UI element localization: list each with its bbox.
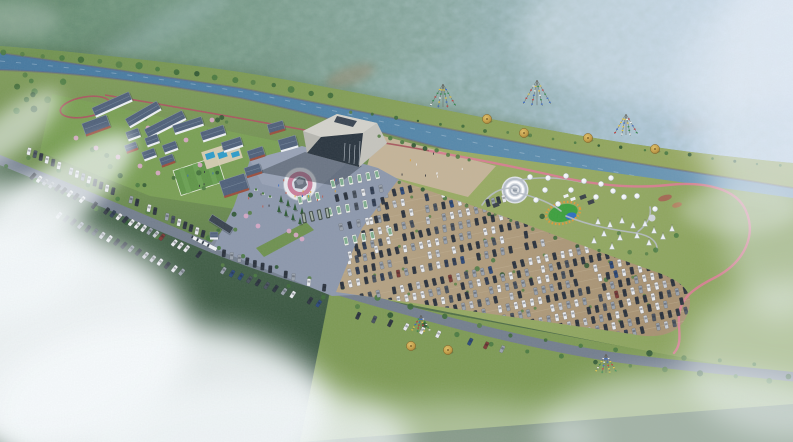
flag [597, 367, 599, 368]
flag [544, 94, 546, 95]
dome-tent [545, 175, 550, 180]
flag [620, 122, 622, 123]
tree [508, 333, 512, 337]
tree [174, 69, 180, 75]
flag [542, 89, 544, 90]
flag [429, 329, 431, 330]
tree [574, 141, 577, 144]
car [291, 273, 295, 281]
dome-tent [652, 206, 657, 211]
tree [579, 344, 583, 348]
flag [446, 101, 448, 102]
flag [535, 86, 537, 87]
tree [489, 342, 494, 347]
tree [371, 113, 374, 116]
tree [674, 233, 679, 238]
person [462, 168, 463, 170]
tree [349, 111, 352, 114]
tree [483, 129, 487, 133]
flag [528, 94, 530, 95]
dome-tent [581, 178, 586, 183]
planter-tree [255, 188, 257, 190]
flag [618, 125, 620, 126]
wall [210, 237, 218, 239]
person [199, 185, 200, 187]
flag [602, 368, 604, 369]
flag [411, 329, 413, 330]
tree [14, 84, 20, 90]
dome-tent [608, 175, 613, 180]
tree [115, 197, 120, 202]
flag [444, 93, 446, 94]
flag [423, 330, 425, 331]
tree [194, 71, 199, 76]
flag [595, 370, 597, 371]
flag [629, 133, 631, 134]
flag [630, 122, 632, 123]
flag [614, 132, 616, 133]
person [402, 174, 403, 176]
flag [636, 132, 638, 133]
tree [233, 228, 237, 232]
flag [604, 358, 606, 359]
flag [421, 322, 423, 323]
car [222, 249, 226, 257]
person [262, 205, 263, 207]
tree [394, 116, 398, 120]
tree [60, 79, 66, 85]
flag [603, 365, 605, 366]
person [204, 183, 205, 185]
parking-bush [454, 283, 457, 286]
flag [622, 130, 624, 131]
flag [525, 98, 527, 99]
tree [215, 171, 219, 175]
flag [531, 104, 533, 105]
cherry-blossom-tree [156, 171, 161, 176]
tree [407, 304, 413, 310]
aerial-rendering-screenshot [0, 0, 793, 442]
tree [232, 77, 238, 83]
person [295, 195, 296, 197]
flag [623, 122, 625, 123]
cherry-blossom-tree [74, 136, 79, 141]
tree [387, 312, 393, 318]
building [210, 232, 219, 240]
flag [413, 327, 415, 328]
flag [547, 98, 549, 99]
person [437, 176, 438, 178]
flag [628, 130, 630, 131]
cherry-blossom-tree [210, 118, 215, 123]
tree [202, 186, 206, 190]
tree [593, 360, 598, 365]
dome-tent [527, 174, 532, 179]
tree [627, 250, 632, 255]
car [307, 279, 311, 287]
flag [622, 126, 624, 127]
tree [446, 153, 450, 157]
tree [4, 164, 8, 168]
flag [425, 324, 427, 325]
flag [541, 104, 543, 105]
flag [540, 99, 542, 100]
flag [432, 100, 434, 101]
tree [155, 67, 160, 72]
flag [627, 122, 629, 123]
person [269, 205, 270, 207]
flag [439, 97, 441, 98]
tree [400, 140, 404, 144]
person [410, 159, 411, 161]
flag [445, 97, 447, 98]
tree-shadow [292, 220, 296, 222]
flag [523, 102, 525, 103]
flag [422, 325, 424, 326]
dome-tent [621, 194, 626, 199]
tree [287, 284, 291, 288]
flag [533, 95, 535, 96]
flag [622, 118, 624, 119]
person [335, 190, 336, 192]
tree [553, 236, 557, 240]
car [268, 265, 272, 273]
car [284, 271, 288, 279]
flag [599, 364, 601, 365]
flag [437, 93, 439, 94]
tree [597, 249, 600, 252]
flag [628, 126, 630, 127]
person [204, 171, 205, 173]
flag [609, 371, 611, 372]
tree [272, 83, 276, 87]
tree [398, 181, 401, 184]
person [303, 190, 304, 192]
cherry-blossom-tree [300, 237, 305, 242]
cherry-blossom-tree [184, 138, 189, 143]
parking-bush [415, 230, 418, 233]
flag [439, 89, 441, 90]
flag [538, 90, 540, 91]
tree [217, 246, 221, 250]
parking-bush [410, 195, 413, 198]
tree [506, 131, 509, 134]
tree [468, 158, 471, 161]
flag [443, 89, 445, 90]
tree [308, 91, 313, 96]
dome-tent [610, 188, 615, 193]
tree [221, 263, 225, 267]
flag [608, 358, 610, 359]
tree [597, 144, 600, 147]
person [336, 179, 337, 181]
flag [417, 330, 419, 331]
tree [29, 79, 34, 84]
tree [328, 93, 334, 99]
flag [440, 93, 442, 94]
tree [275, 265, 279, 269]
person [317, 199, 318, 201]
flag [430, 104, 432, 105]
person [283, 179, 284, 181]
car [260, 263, 264, 271]
flag [534, 90, 536, 91]
tree [321, 295, 326, 300]
flag [613, 367, 615, 368]
tree [26, 156, 30, 160]
parking-bush [534, 307, 537, 310]
flag [419, 319, 421, 320]
flag [539, 95, 541, 96]
tree [23, 72, 28, 77]
tree [442, 314, 447, 319]
flag [445, 89, 447, 90]
flag [608, 368, 610, 369]
tree-shadow [294, 210, 298, 212]
parking-bush [512, 270, 515, 273]
tree [477, 323, 482, 328]
flag [447, 93, 449, 94]
tree [559, 354, 564, 359]
flag [437, 105, 439, 106]
tree [97, 59, 102, 64]
tree [355, 304, 360, 309]
flag [416, 321, 418, 322]
flag [621, 133, 623, 134]
flag [607, 362, 609, 363]
flag [539, 85, 541, 86]
tree [59, 55, 65, 61]
cherry-blossom-tree [287, 229, 292, 234]
person [308, 195, 309, 197]
tree [219, 115, 224, 120]
planter-tree [262, 192, 264, 194]
dome-tent [555, 201, 560, 206]
tree [439, 123, 442, 126]
tree [456, 155, 460, 159]
tree-shadow [299, 224, 303, 226]
person [310, 191, 311, 193]
dome-tent [542, 187, 547, 192]
dome-tent [593, 194, 598, 199]
tree [531, 227, 535, 231]
flag [421, 319, 423, 320]
tree [544, 338, 548, 342]
tree [241, 254, 245, 258]
flag [427, 327, 429, 328]
tree [644, 149, 646, 151]
tree [613, 347, 618, 352]
tree [509, 219, 512, 222]
flag [616, 129, 618, 130]
planter-tree [269, 195, 271, 197]
tree [248, 193, 253, 198]
flag [606, 358, 608, 359]
tree [78, 57, 84, 63]
flag [537, 86, 539, 87]
tree-shadow [278, 212, 282, 214]
cherry-blossom-tree [244, 214, 249, 219]
tree [215, 117, 220, 122]
car [322, 284, 326, 292]
tree [688, 153, 692, 157]
flag [533, 85, 535, 86]
flag [419, 322, 421, 323]
parking-bush [631, 276, 634, 279]
flag [447, 105, 449, 106]
dome-tent [533, 197, 538, 202]
tree [0, 50, 6, 56]
scene-canvas [0, 0, 793, 442]
person [213, 172, 214, 174]
person [433, 153, 434, 155]
tree [248, 211, 252, 215]
tree [421, 187, 425, 191]
person [286, 192, 287, 194]
person [334, 179, 335, 181]
flag [615, 370, 617, 371]
car [245, 257, 249, 265]
flag [607, 365, 609, 366]
tree [116, 61, 123, 68]
flag [532, 99, 534, 100]
flag [454, 104, 456, 105]
dome-tent [563, 173, 568, 178]
tree [216, 228, 220, 232]
flag [626, 119, 628, 120]
tree [525, 349, 529, 353]
flag [423, 328, 425, 329]
flag [609, 361, 611, 362]
tree [617, 231, 621, 235]
tree [196, 170, 201, 175]
person [261, 193, 262, 195]
tree [251, 80, 256, 85]
tree [465, 204, 469, 208]
tree [646, 350, 652, 356]
car [230, 252, 234, 260]
tree [423, 146, 428, 151]
tree [20, 52, 25, 57]
tree-shadow [287, 206, 291, 208]
dome-tent [598, 181, 603, 186]
tree [645, 252, 648, 255]
tree [434, 148, 438, 152]
flag [450, 96, 452, 97]
flag [417, 328, 419, 329]
person [187, 175, 188, 177]
flag [424, 321, 426, 322]
tree-shadow [280, 202, 284, 204]
parking-bush [522, 289, 525, 292]
tree [172, 176, 176, 180]
person [248, 197, 249, 199]
cherry-blossom-tree [256, 224, 261, 229]
tree [619, 146, 622, 149]
tree [288, 86, 295, 93]
tree [539, 214, 544, 219]
flag [441, 89, 443, 90]
person [322, 196, 323, 198]
person [437, 172, 438, 174]
tree [629, 364, 633, 368]
dome-tent [634, 193, 639, 198]
flag [611, 364, 613, 365]
tree [491, 258, 495, 262]
flag [624, 119, 626, 120]
flag [452, 100, 454, 101]
flag [602, 358, 604, 359]
car [253, 260, 257, 268]
person [302, 195, 303, 197]
cherry-blossom-tree [198, 163, 203, 168]
flag [603, 362, 605, 363]
flag [634, 129, 636, 130]
tree [232, 212, 237, 217]
dome-tent [568, 187, 573, 192]
cherry-blossom-tree [138, 164, 143, 169]
flag [601, 361, 603, 362]
person [278, 184, 279, 186]
tree [417, 120, 419, 122]
flag [601, 371, 603, 372]
tree [142, 183, 146, 187]
tree [664, 151, 668, 155]
tree [461, 125, 464, 128]
car [237, 255, 241, 263]
tree [135, 183, 140, 188]
tree [377, 134, 380, 137]
tree [135, 62, 142, 69]
tree [411, 143, 416, 148]
person [425, 175, 426, 177]
tree [552, 138, 555, 141]
cherry-blossom-tree [294, 233, 299, 238]
tree [388, 136, 392, 140]
flag [530, 89, 532, 90]
tree [41, 54, 45, 58]
tree [454, 332, 459, 337]
flag [415, 324, 417, 325]
tree [225, 120, 228, 123]
tree-shadow [285, 216, 289, 218]
tree [212, 75, 218, 81]
flag [418, 325, 420, 326]
flag [632, 125, 634, 126]
flag [438, 101, 440, 102]
person [416, 163, 417, 165]
tree [254, 274, 258, 278]
flag [434, 96, 436, 97]
flag [628, 118, 630, 119]
tree [653, 247, 658, 252]
flag [549, 102, 551, 103]
